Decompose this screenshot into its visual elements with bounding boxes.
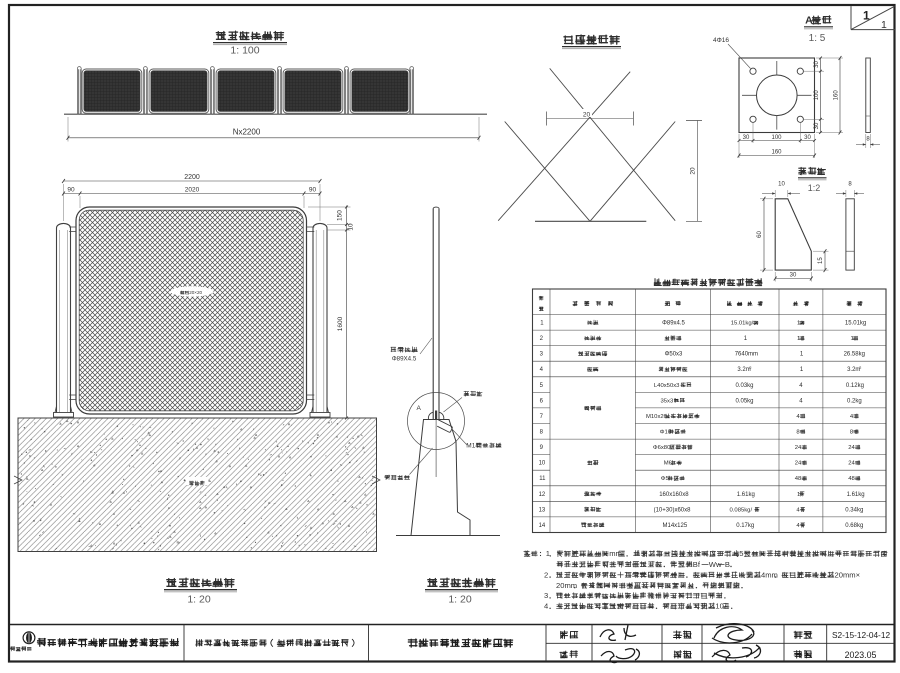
svg-text:26.58kg: 26.58kg [844,352,865,358]
svg-text:30: 30 [743,135,750,141]
svg-text:160x160x8: 160x160x8 [659,492,689,498]
svg-text:30: 30 [814,61,820,68]
svg-text:S2-15-12-04-12: S2-15-12-04-12 [832,630,891,640]
svg-text:Φ89X4.5: Φ89X4.5 [392,356,417,363]
svg-text:150: 150 [337,210,344,221]
svg-text:90: 90 [309,187,317,194]
svg-text:1: 1 [800,367,804,373]
svg-text:Φ6x80: Φ6x80 [653,445,671,451]
svg-text:mm: mm [609,549,622,558]
svg-text:4: 4 [799,398,803,404]
svg-text:B: B [725,560,730,569]
svg-text:0.03kg: 0.03kg [736,383,754,389]
svg-text:30: 30 [804,135,811,141]
svg-text:30: 30 [790,273,797,279]
svg-text:5: 5 [739,549,743,558]
svg-text:4mm: 4mm [761,570,778,579]
svg-text:9: 9 [540,445,544,451]
svg-text:3: 3 [540,352,544,358]
svg-text:0.68kg: 0.68kg [845,523,863,529]
svg-text:7: 7 [540,414,544,420]
svg-text:0.17kg: 0.17kg [736,523,754,529]
svg-text:Φ50x3: Φ50x3 [665,352,683,358]
svg-text:6: 6 [540,398,544,404]
svg-text:13: 13 [539,507,546,513]
svg-text:20×20: 20×20 [189,290,202,295]
svg-text:1: 1 [800,352,804,358]
svg-text:4: 4 [799,383,803,389]
svg-text:4: 4 [796,523,800,529]
svg-text:24: 24 [795,461,802,467]
svg-text:10: 10 [348,223,355,231]
svg-text:20: 20 [690,167,697,175]
svg-text:20mm: 20mm [556,581,577,590]
svg-text:10: 10 [539,461,546,467]
svg-text:4: 4 [544,602,548,611]
svg-text:48: 48 [848,476,855,482]
svg-text:30: 30 [814,122,820,129]
svg-text:4: 4 [796,507,800,513]
svg-text:10: 10 [778,182,785,188]
svg-text:1:2: 1:2 [808,183,821,193]
svg-text:20: 20 [583,112,591,119]
svg-text:(10+30)x60x8: (10+30)x60x8 [654,507,692,513]
svg-text:15: 15 [818,257,824,264]
svg-text:48: 48 [795,476,802,482]
svg-text:1: 1 [744,336,748,342]
svg-text:Nx2200: Nx2200 [233,128,261,137]
svg-text:Bf: Bf [693,560,701,569]
svg-text:5: 5 [540,383,544,389]
svg-text:10: 10 [715,602,723,611]
svg-text:2: 2 [859,365,862,370]
svg-text:0.34kg: 0.34kg [845,507,863,513]
svg-text:4Φ16: 4Φ16 [713,37,729,44]
svg-text:1: 100: 1: 100 [230,45,259,57]
svg-text:1: 1 [863,9,870,23]
svg-text:2020: 2020 [185,187,200,194]
svg-text:11: 11 [539,476,546,482]
svg-text:M14x125: M14x125 [663,523,688,529]
svg-text:2: 2 [540,336,544,342]
svg-text:8: 8 [796,430,800,436]
svg-text:100: 100 [771,135,782,141]
svg-text:100: 100 [814,90,820,101]
svg-text:160: 160 [834,90,840,101]
svg-text:8: 8 [866,137,870,143]
svg-text:1: 5: 1: 5 [809,33,826,44]
svg-text:35x3: 35x3 [661,398,674,404]
svg-text:8: 8 [848,182,852,188]
svg-text:1: 1 [546,549,550,558]
svg-text:2: 2 [749,365,752,370]
svg-text:12: 12 [539,492,546,498]
svg-text:3: 3 [544,591,548,600]
svg-text:M10x20: M10x20 [646,414,668,420]
svg-text:1: 20: 1: 20 [448,594,472,606]
svg-text:1600: 1600 [337,316,344,331]
svg-text:20mm×: 20mm× [835,570,861,579]
svg-text:15.01kg: 15.01kg [845,321,866,327]
svg-text:160: 160 [771,150,782,156]
svg-text:8: 8 [850,430,854,436]
svg-text:L40x50x3: L40x50x3 [654,383,680,389]
svg-text:1: 1 [540,321,544,327]
svg-text:15.01kg/: 15.01kg/ [731,321,754,327]
svg-text:1: 20: 1: 20 [187,594,211,606]
svg-text:1.61kg: 1.61kg [847,492,865,498]
svg-text:2023.05: 2023.05 [845,650,877,660]
svg-text:4: 4 [850,414,854,420]
svg-text:60: 60 [757,231,763,238]
svg-text:24: 24 [795,445,802,451]
svg-text:2200: 2200 [184,174,200,181]
svg-text:4: 4 [796,414,800,420]
svg-text:1: 1 [797,492,800,498]
svg-text:8: 8 [540,430,544,436]
svg-text:0.12kg: 0.12kg [846,383,864,389]
svg-text:A: A [417,405,422,412]
svg-text:24: 24 [848,461,855,467]
svg-text:90: 90 [67,187,75,194]
svg-text:14: 14 [539,523,546,529]
svg-text:0.085kg/: 0.085kg/ [730,507,753,513]
svg-text:7640mm: 7640mm [735,352,758,358]
svg-text:4: 4 [540,367,544,373]
svg-text:1: 1 [881,19,887,31]
svg-text:0.2kg: 0.2kg [847,398,862,404]
svg-text:1.61kg: 1.61kg [737,492,755,498]
svg-text:2: 2 [544,570,548,579]
svg-text:0.05kg: 0.05kg [736,398,754,404]
svg-text:24: 24 [848,445,855,451]
svg-text:Φ89x4.5: Φ89x4.5 [662,321,685,327]
